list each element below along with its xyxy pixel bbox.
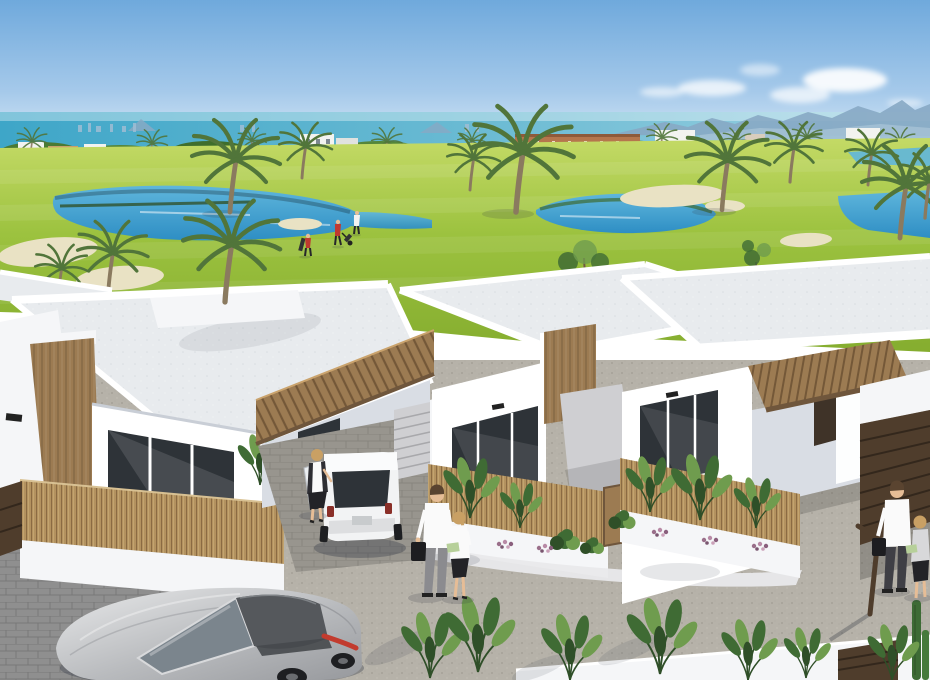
villa-golf-render xyxy=(0,0,930,680)
briefcase xyxy=(872,538,886,556)
scene-canvas xyxy=(0,0,930,680)
green-folder xyxy=(447,542,460,553)
briefcase xyxy=(411,542,426,561)
green-folder xyxy=(905,544,917,553)
rear-window xyxy=(332,470,390,508)
left-gate xyxy=(0,481,22,556)
